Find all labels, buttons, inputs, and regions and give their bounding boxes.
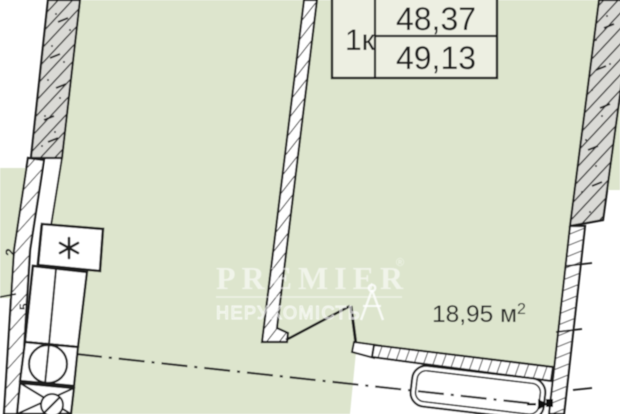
- svg-text:18,95 м2: 18,95 м2: [432, 301, 526, 328]
- svg-text:1к: 1к: [345, 24, 376, 57]
- svg-text:2: 2: [2, 248, 18, 256]
- svg-text:PREMIER: PREMIER: [216, 260, 409, 296]
- svg-text:НЕРУХОМІСТЬ: НЕРУХОМІСТЬ: [216, 303, 361, 323]
- svg-text:49,13: 49,13: [396, 40, 476, 76]
- svg-text:48,37: 48,37: [396, 1, 476, 37]
- svg-text:®: ®: [396, 257, 404, 269]
